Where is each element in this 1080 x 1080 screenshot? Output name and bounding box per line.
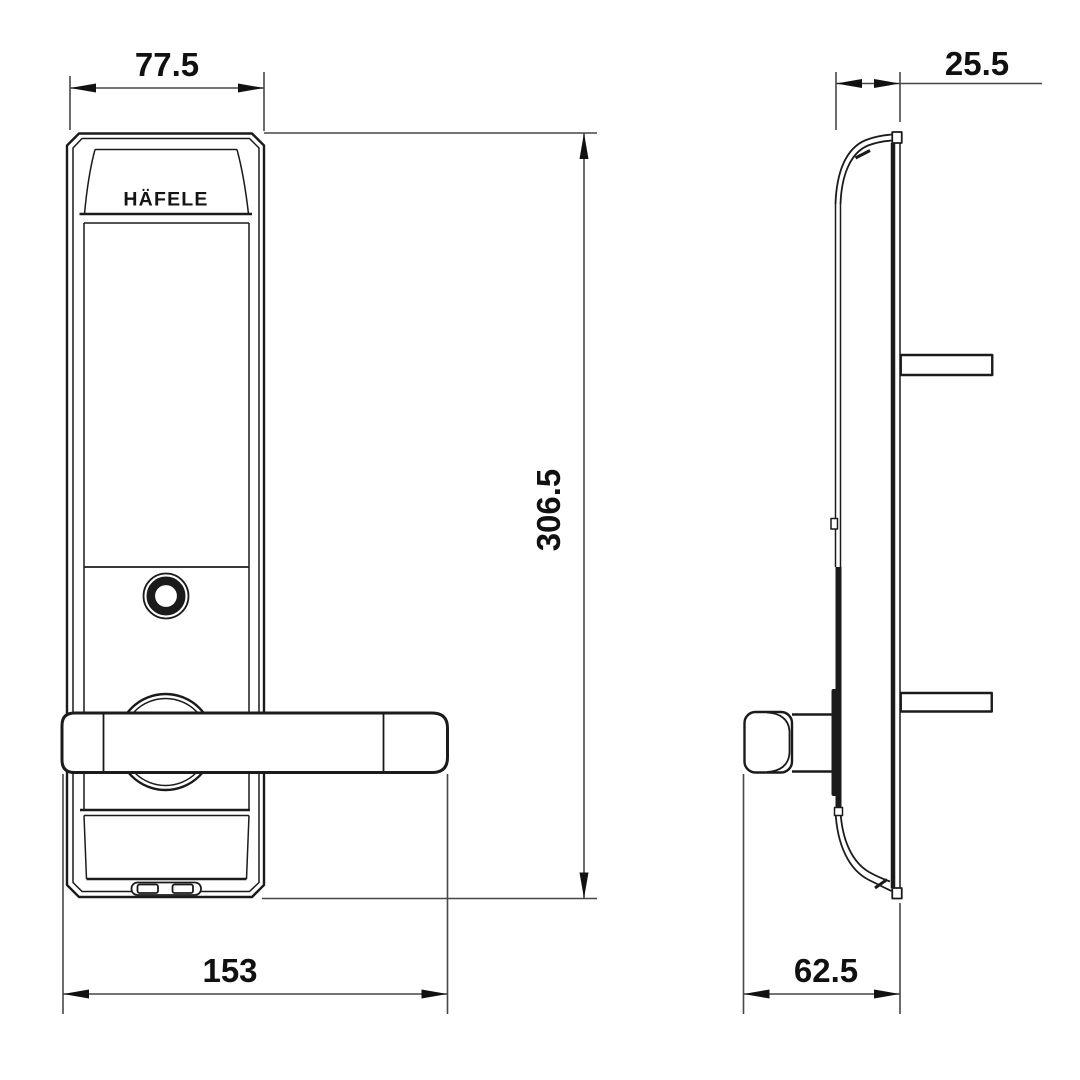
top-cap-panel [80,150,253,224]
bottom-connector [132,883,202,896]
dim-label-side-top-depth: 25.5 [945,45,1009,82]
dim-side-top-depth: 25.5 [836,45,1042,130]
body-outline [67,134,264,898]
dim-label-overall-height: 306.5 [530,469,567,552]
plate-top-cap [892,132,902,143]
side-front-face [831,204,842,811]
dim-label-front-overall-width: 153 [202,952,257,989]
door-lock-technical-drawing: HÄFELE [0,0,1080,1080]
round-button [144,574,189,619]
handle-knob [745,712,793,773]
dim-label-front-top-width: 77.5 [135,46,199,83]
side-bottom-curve [835,808,892,892]
handle-outline [62,713,448,773]
dim-front-top-width: 77.5 [70,46,264,131]
drawing-page: HÄFELE [0,0,1080,1080]
handle-side-profile [745,712,836,773]
side-top-curve [836,135,893,205]
side-face-notch [831,519,838,530]
rosette-side-profile [832,689,838,796]
latch-bolt-top [901,355,993,375]
plate-bottom-cap [892,888,902,899]
dim-side-overall-depth: 62.5 [744,774,901,1014]
dim-label-side-overall-depth: 62.5 [794,952,858,989]
front-view: HÄFELE [62,134,448,898]
lower-panel [80,810,250,879]
body-inner-line [73,139,259,892]
dim-overall-height: 306.5 [262,133,597,899]
lever-handle [62,713,448,773]
mounting-plate [892,132,902,899]
latch-bolt-bottom [901,693,992,712]
brand-logo-text: HÄFELE [123,188,208,211]
side-view [745,132,993,899]
